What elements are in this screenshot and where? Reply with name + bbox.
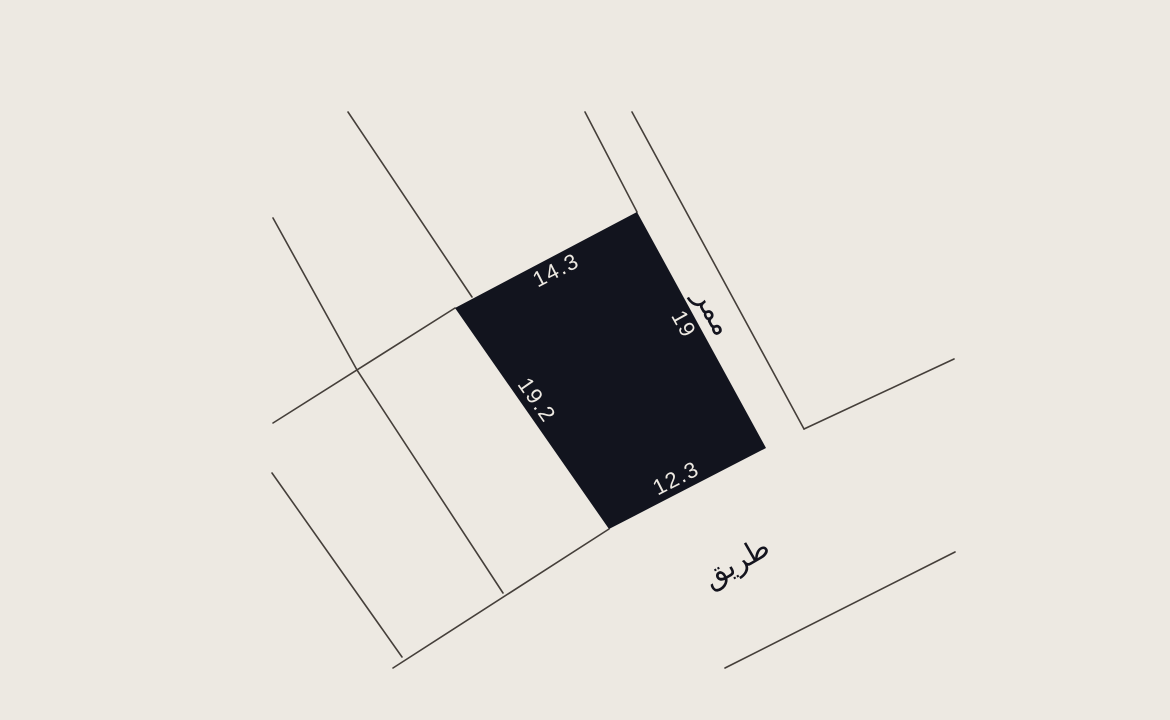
south-road-edge [393, 529, 609, 668]
west-neighbor-boundary-upper [273, 218, 357, 370]
parcel-polygon [455, 212, 766, 529]
street-label-road: طريق [697, 529, 776, 594]
plot-map-canvas: 14.31912.319.2ممرطريق [0, 0, 1170, 720]
far-west-neighbor-boundary [272, 473, 402, 657]
cadastral-plot-map: 14.31912.319.2ممرطريق [0, 0, 1170, 720]
passage-inner-edge [585, 112, 637, 212]
northeast-neighbor-boundary [804, 359, 954, 429]
southeast-road-edge [725, 552, 955, 668]
west-neighbor-boundary-lower [357, 370, 503, 593]
southwest-extension-of-parcel-edge [273, 308, 455, 423]
north-neighbor-boundary [348, 112, 472, 297]
